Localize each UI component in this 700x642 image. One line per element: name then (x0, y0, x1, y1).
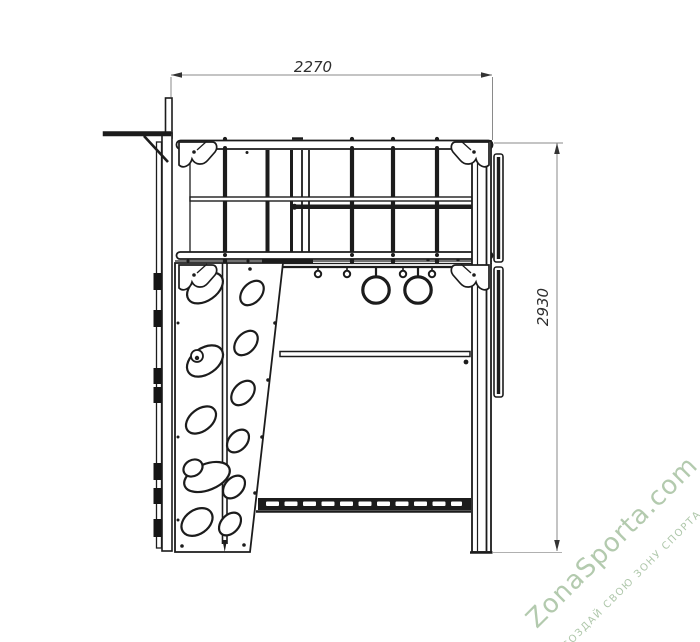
right-post (470, 141, 493, 553)
side-dimension-label: 2930 (534, 288, 552, 326)
bridge-railing (177, 139, 493, 263)
right-edge-panel-strips (494, 154, 503, 397)
gymnastic-rings (363, 266, 431, 303)
drawing-canvas: 2270 2930 (0, 0, 700, 642)
lower-mid-rail (280, 352, 470, 357)
top-dimension (171, 75, 493, 140)
top-dimension-label: 2270 (294, 58, 332, 76)
watermark: ZonaSporta.com СОЗДАЙ СВОЮ ЗОНУ СПОРТА (521, 451, 700, 642)
mid-rail-upper (190, 197, 483, 201)
monkey-bar-beam (256, 498, 471, 512)
mid-rail-lower-top (292, 204, 483, 210)
structure-drawing: 2270 2930 (0, 0, 700, 642)
